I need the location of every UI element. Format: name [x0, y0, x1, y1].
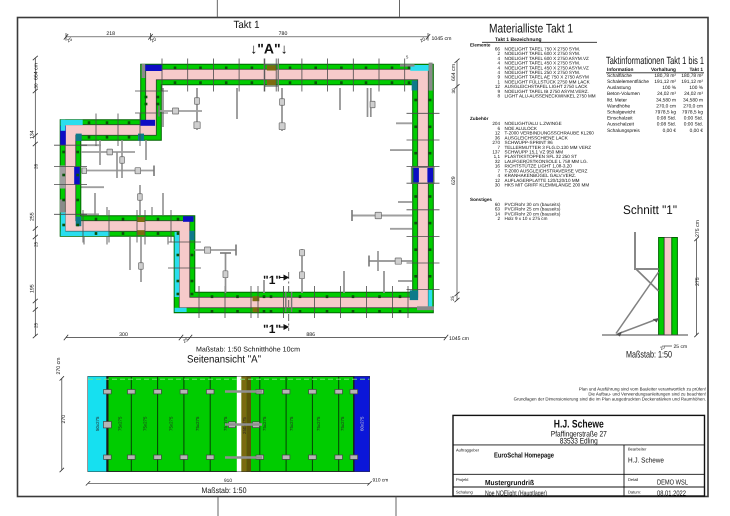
- svg-text:629: 629: [451, 176, 457, 185]
- svg-text:Projekt: Projekt: [456, 477, 469, 482]
- svg-text:Schnitt "1": Schnitt "1": [623, 203, 677, 217]
- svg-text:Beton-Volumen: Beton-Volumen: [607, 91, 640, 97]
- svg-text:780: 780: [279, 31, 288, 37]
- svg-text:2: 2: [497, 216, 500, 221]
- svg-text:1045 cm: 1045 cm: [432, 36, 452, 42]
- svg-text:Ausschalzeit: Ausschalzeit: [607, 122, 635, 128]
- svg-text:Mustergrundriß: Mustergrundriß: [485, 478, 535, 487]
- svg-text:75x275: 75x275: [340, 416, 345, 431]
- svg-text:lfd. Meter: lfd. Meter: [607, 97, 627, 103]
- svg-text:30: 30: [451, 88, 456, 94]
- svg-text:Auftraggeber: Auftraggeber: [456, 448, 480, 453]
- svg-text:24,02 m³: 24,02 m³: [684, 91, 703, 97]
- svg-text:270: 270: [61, 415, 67, 424]
- svg-text:0:00 Std.: 0:00 Std.: [684, 116, 703, 122]
- svg-text:LIGHT ALU-AUSSENECKWINKEL 2750: LIGHT ALU-AUSSENECKWINKEL 2750 MM: [505, 94, 596, 99]
- svg-text:25: 25: [450, 295, 455, 301]
- svg-text:50x275: 50x275: [95, 416, 100, 431]
- svg-text:275: 275: [695, 277, 701, 286]
- svg-text:DEMO WSL: DEMO WSL: [657, 478, 688, 487]
- svg-text:34,580 m: 34,580 m: [656, 97, 676, 103]
- svg-text:34,580 m: 34,580 m: [683, 97, 703, 103]
- svg-text:25 cm: 25 cm: [674, 344, 688, 350]
- svg-text:270,0 cm: 270,0 cm: [683, 103, 703, 109]
- svg-text:191,12 m²: 191,12 m²: [681, 79, 703, 85]
- svg-text:75x275: 75x275: [143, 416, 148, 431]
- svg-text:08.01.2022: 08.01.2022: [657, 489, 686, 498]
- svg-text:Elemente: Elemente: [470, 43, 491, 48]
- svg-text:Schalgewicht: Schalgewicht: [607, 110, 636, 116]
- svg-text:HKS MIT GRIFF KLEMMLÄNGE 200 M: HKS MIT GRIFF KLEMMLÄNGE 200 MM: [505, 183, 590, 188]
- svg-text:Bearbeiter: Bearbeiter: [628, 447, 647, 452]
- svg-text:75x275: 75x275: [195, 416, 200, 431]
- svg-text:270 cm: 270 cm: [56, 357, 62, 374]
- svg-text:886: 886: [306, 332, 315, 338]
- svg-text:83533 Edling: 83533 Edling: [560, 436, 598, 445]
- svg-text:300: 300: [119, 332, 128, 338]
- svg-text:Einschalzeit: Einschalzeit: [607, 116, 633, 122]
- svg-text:Schalung: Schalung: [456, 490, 473, 495]
- svg-text:Maßstab: 1:50 Schnitthöhe: Maßstab: 1:50 Schnitthöhe 10cm: [196, 346, 300, 354]
- svg-text:24,02 m³: 24,02 m³: [657, 91, 676, 97]
- svg-text:664 cm: 664 cm: [33, 63, 39, 80]
- svg-text:275 cm: 275 cm: [695, 220, 701, 237]
- svg-text:20: 20: [150, 36, 157, 43]
- svg-text:910: 910: [224, 478, 232, 484]
- svg-text:EuroSchal Homepage: EuroSchal Homepage: [494, 451, 554, 460]
- svg-text:Schalfläche: Schalfläche: [607, 73, 632, 79]
- svg-text:0,00 €: 0,00 €: [663, 128, 677, 134]
- svg-text:218: 218: [106, 31, 115, 37]
- svg-text:134: 134: [30, 130, 36, 139]
- svg-text:Sonstiges: Sonstiges: [470, 197, 492, 202]
- svg-text:Auslastung: Auslastung: [607, 85, 631, 91]
- svg-text:25: 25: [33, 322, 38, 328]
- svg-text:180,78 m²: 180,78 m²: [681, 73, 703, 79]
- svg-text:1045 cm: 1045 cm: [449, 336, 469, 342]
- svg-text:Detail: Detail: [628, 477, 638, 482]
- svg-text:Takt 1: Takt 1: [234, 19, 260, 31]
- svg-text:75x275: 75x275: [169, 416, 174, 431]
- svg-text:25: 25: [33, 241, 38, 247]
- svg-text:Takt 1: Takt 1: [689, 67, 703, 73]
- svg-text:25: 25: [66, 36, 73, 43]
- svg-text:0:08 Std.: 0:08 Std.: [657, 122, 676, 128]
- svg-text:Taktinformationen Takt 1 bis: Taktinformationen Takt 1 bis 1: [606, 55, 704, 67]
- svg-text:75x275: 75x275: [118, 416, 123, 431]
- svg-text:7978,5 kg: 7978,5 kg: [682, 110, 703, 116]
- svg-text:8: 8: [497, 94, 500, 99]
- svg-text:270,0 cm: 270,0 cm: [656, 103, 676, 109]
- svg-text:H.J. Schewe: H.J. Schewe: [628, 456, 664, 465]
- svg-text:75x275: 75x275: [316, 416, 321, 431]
- svg-text:Maßstab: 1:50: Maßstab: 1:50: [626, 350, 672, 361]
- svg-text:Schalungspreis: Schalungspreis: [607, 128, 640, 134]
- svg-text:100 %: 100 %: [689, 85, 703, 91]
- svg-text:Zubehör: Zubehör: [470, 116, 489, 121]
- svg-text:75x275: 75x275: [262, 416, 267, 431]
- svg-text:Grundlagen der Dimensionierung: Grundlagen der Dimensionierung sind die …: [514, 397, 706, 402]
- svg-text:20: 20: [419, 36, 426, 43]
- svg-text:"1": "1": [263, 273, 281, 287]
- svg-text:60x275: 60x275: [360, 416, 365, 431]
- svg-text:191,12 m²: 191,12 m²: [654, 79, 676, 85]
- svg-text:7978,5 kg: 7978,5 kg: [655, 110, 676, 116]
- svg-text:Wandhöhe: Wandhöhe: [607, 103, 630, 109]
- svg-text:Vorhaltung: Vorhaltung: [651, 67, 676, 73]
- svg-text:0:08 Std.: 0:08 Std.: [657, 116, 676, 122]
- svg-text:0,00 €: 0,00 €: [690, 128, 704, 134]
- svg-text:Schalelementfläche: Schalelementfläche: [607, 79, 649, 85]
- svg-text:Maßstab: 1:50: Maßstab: 1:50: [202, 486, 247, 495]
- svg-text:Datum:: Datum:: [628, 490, 641, 495]
- svg-text:910 cm: 910 cm: [373, 478, 389, 484]
- svg-text:25: 25: [182, 337, 189, 344]
- svg-text:26: 26: [33, 163, 38, 169]
- svg-text:30: 30: [33, 83, 38, 89]
- svg-text:Holz 9 x 10 x 275 cm: Holz 9 x 10 x 275 cm: [505, 216, 548, 221]
- svg-text:255: 255: [30, 212, 36, 221]
- svg-text:"1": "1": [263, 322, 281, 336]
- svg-text:Materialliste Takt 1: Materialliste Takt 1: [489, 22, 573, 36]
- svg-text:195: 195: [30, 284, 36, 293]
- svg-text:Information: Information: [607, 67, 633, 73]
- svg-text:5: 5: [406, 55, 409, 60]
- svg-text:Seitenansicht "A": Seitenansicht "A": [187, 354, 261, 366]
- svg-text:↓"A"↓: ↓"A"↓: [250, 41, 287, 57]
- svg-text:100 %: 100 %: [662, 85, 676, 91]
- svg-text:0:00 Std.: 0:00 Std.: [684, 122, 703, 128]
- svg-text:75x275: 75x275: [289, 416, 294, 431]
- svg-text:180,78 m²: 180,78 m²: [654, 73, 676, 79]
- svg-text:664 cm: 664 cm: [451, 64, 457, 81]
- svg-text:30: 30: [495, 183, 501, 188]
- svg-text:Noe NOElight (Hauptlager): Noe NOElight (Hauptlager): [485, 489, 547, 498]
